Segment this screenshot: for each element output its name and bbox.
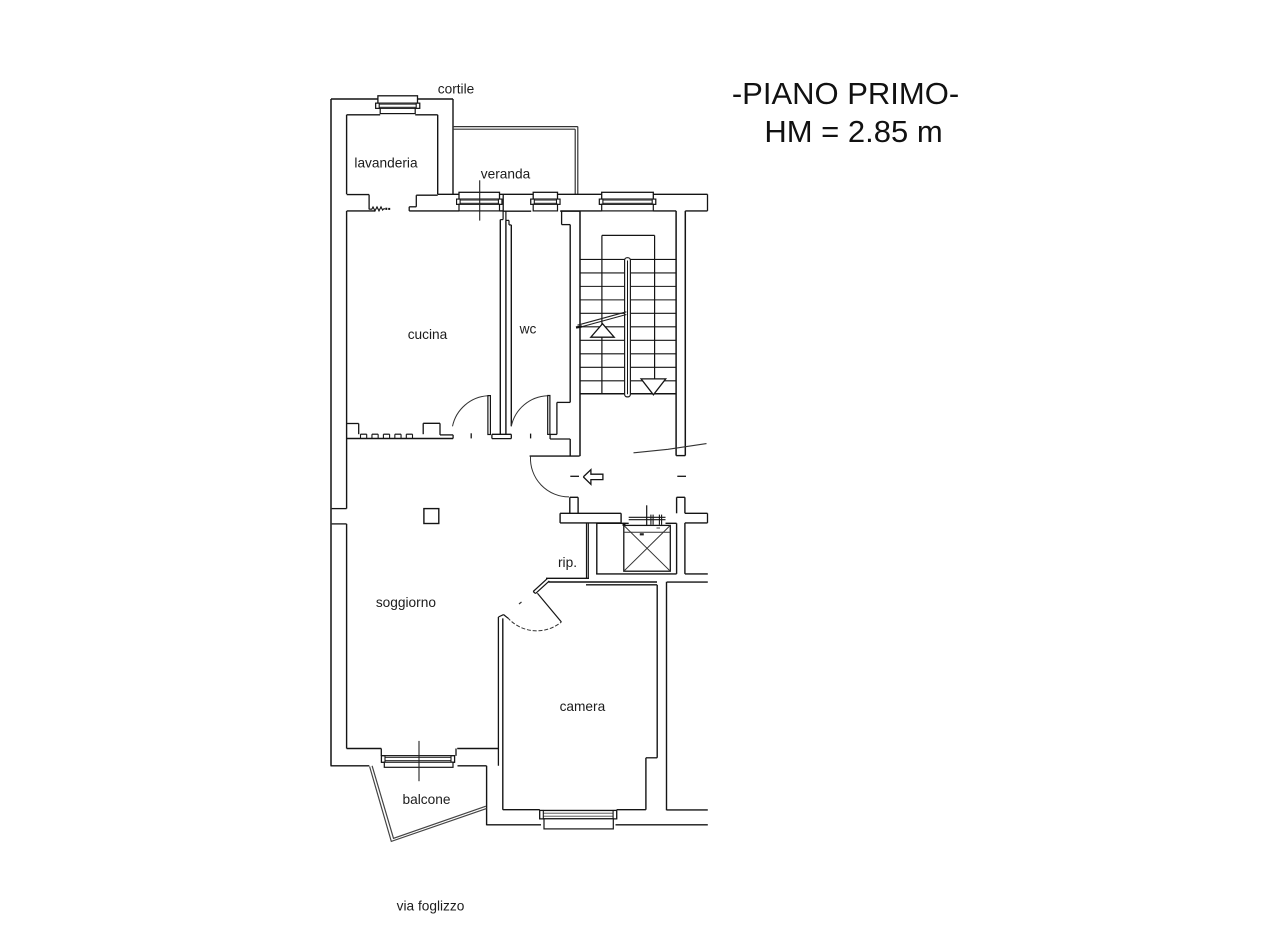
svg-text:rip.: rip.	[558, 555, 577, 570]
svg-text:via foglizzo: via foglizzo	[397, 899, 465, 914]
svg-text:wc: wc	[519, 322, 537, 337]
svg-text:-PIANO PRIMO-: -PIANO PRIMO-	[732, 76, 959, 111]
svg-text:HM = 2.85 m: HM = 2.85 m	[764, 114, 942, 149]
svg-text:cucina: cucina	[408, 327, 448, 342]
svg-text:soggiorno: soggiorno	[376, 595, 437, 610]
svg-text:camera: camera	[560, 699, 606, 714]
svg-text:balcone: balcone	[403, 792, 451, 807]
svg-text:veranda: veranda	[481, 167, 531, 182]
svg-text:cortile: cortile	[438, 82, 475, 97]
svg-text:lavanderia: lavanderia	[354, 156, 418, 171]
